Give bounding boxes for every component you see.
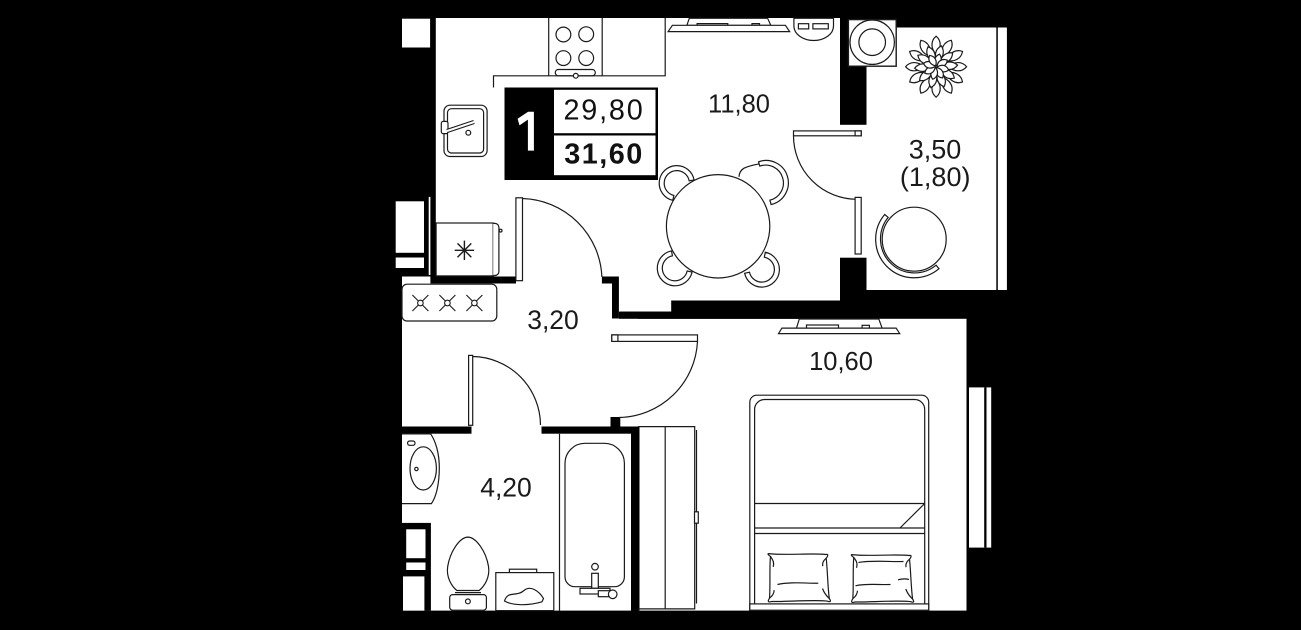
svg-text:3,20: 3,20 <box>527 305 579 335</box>
svg-text:10,60: 10,60 <box>809 348 873 376</box>
svg-text:11,80: 11,80 <box>708 90 770 118</box>
svg-text:4,20: 4,20 <box>480 472 532 502</box>
svg-text:(1,80): (1,80) <box>900 162 971 192</box>
svg-text:3,50: 3,50 <box>909 134 962 164</box>
svg-text:29,80: 29,80 <box>563 94 644 126</box>
svg-text:31,60: 31,60 <box>564 138 644 170</box>
